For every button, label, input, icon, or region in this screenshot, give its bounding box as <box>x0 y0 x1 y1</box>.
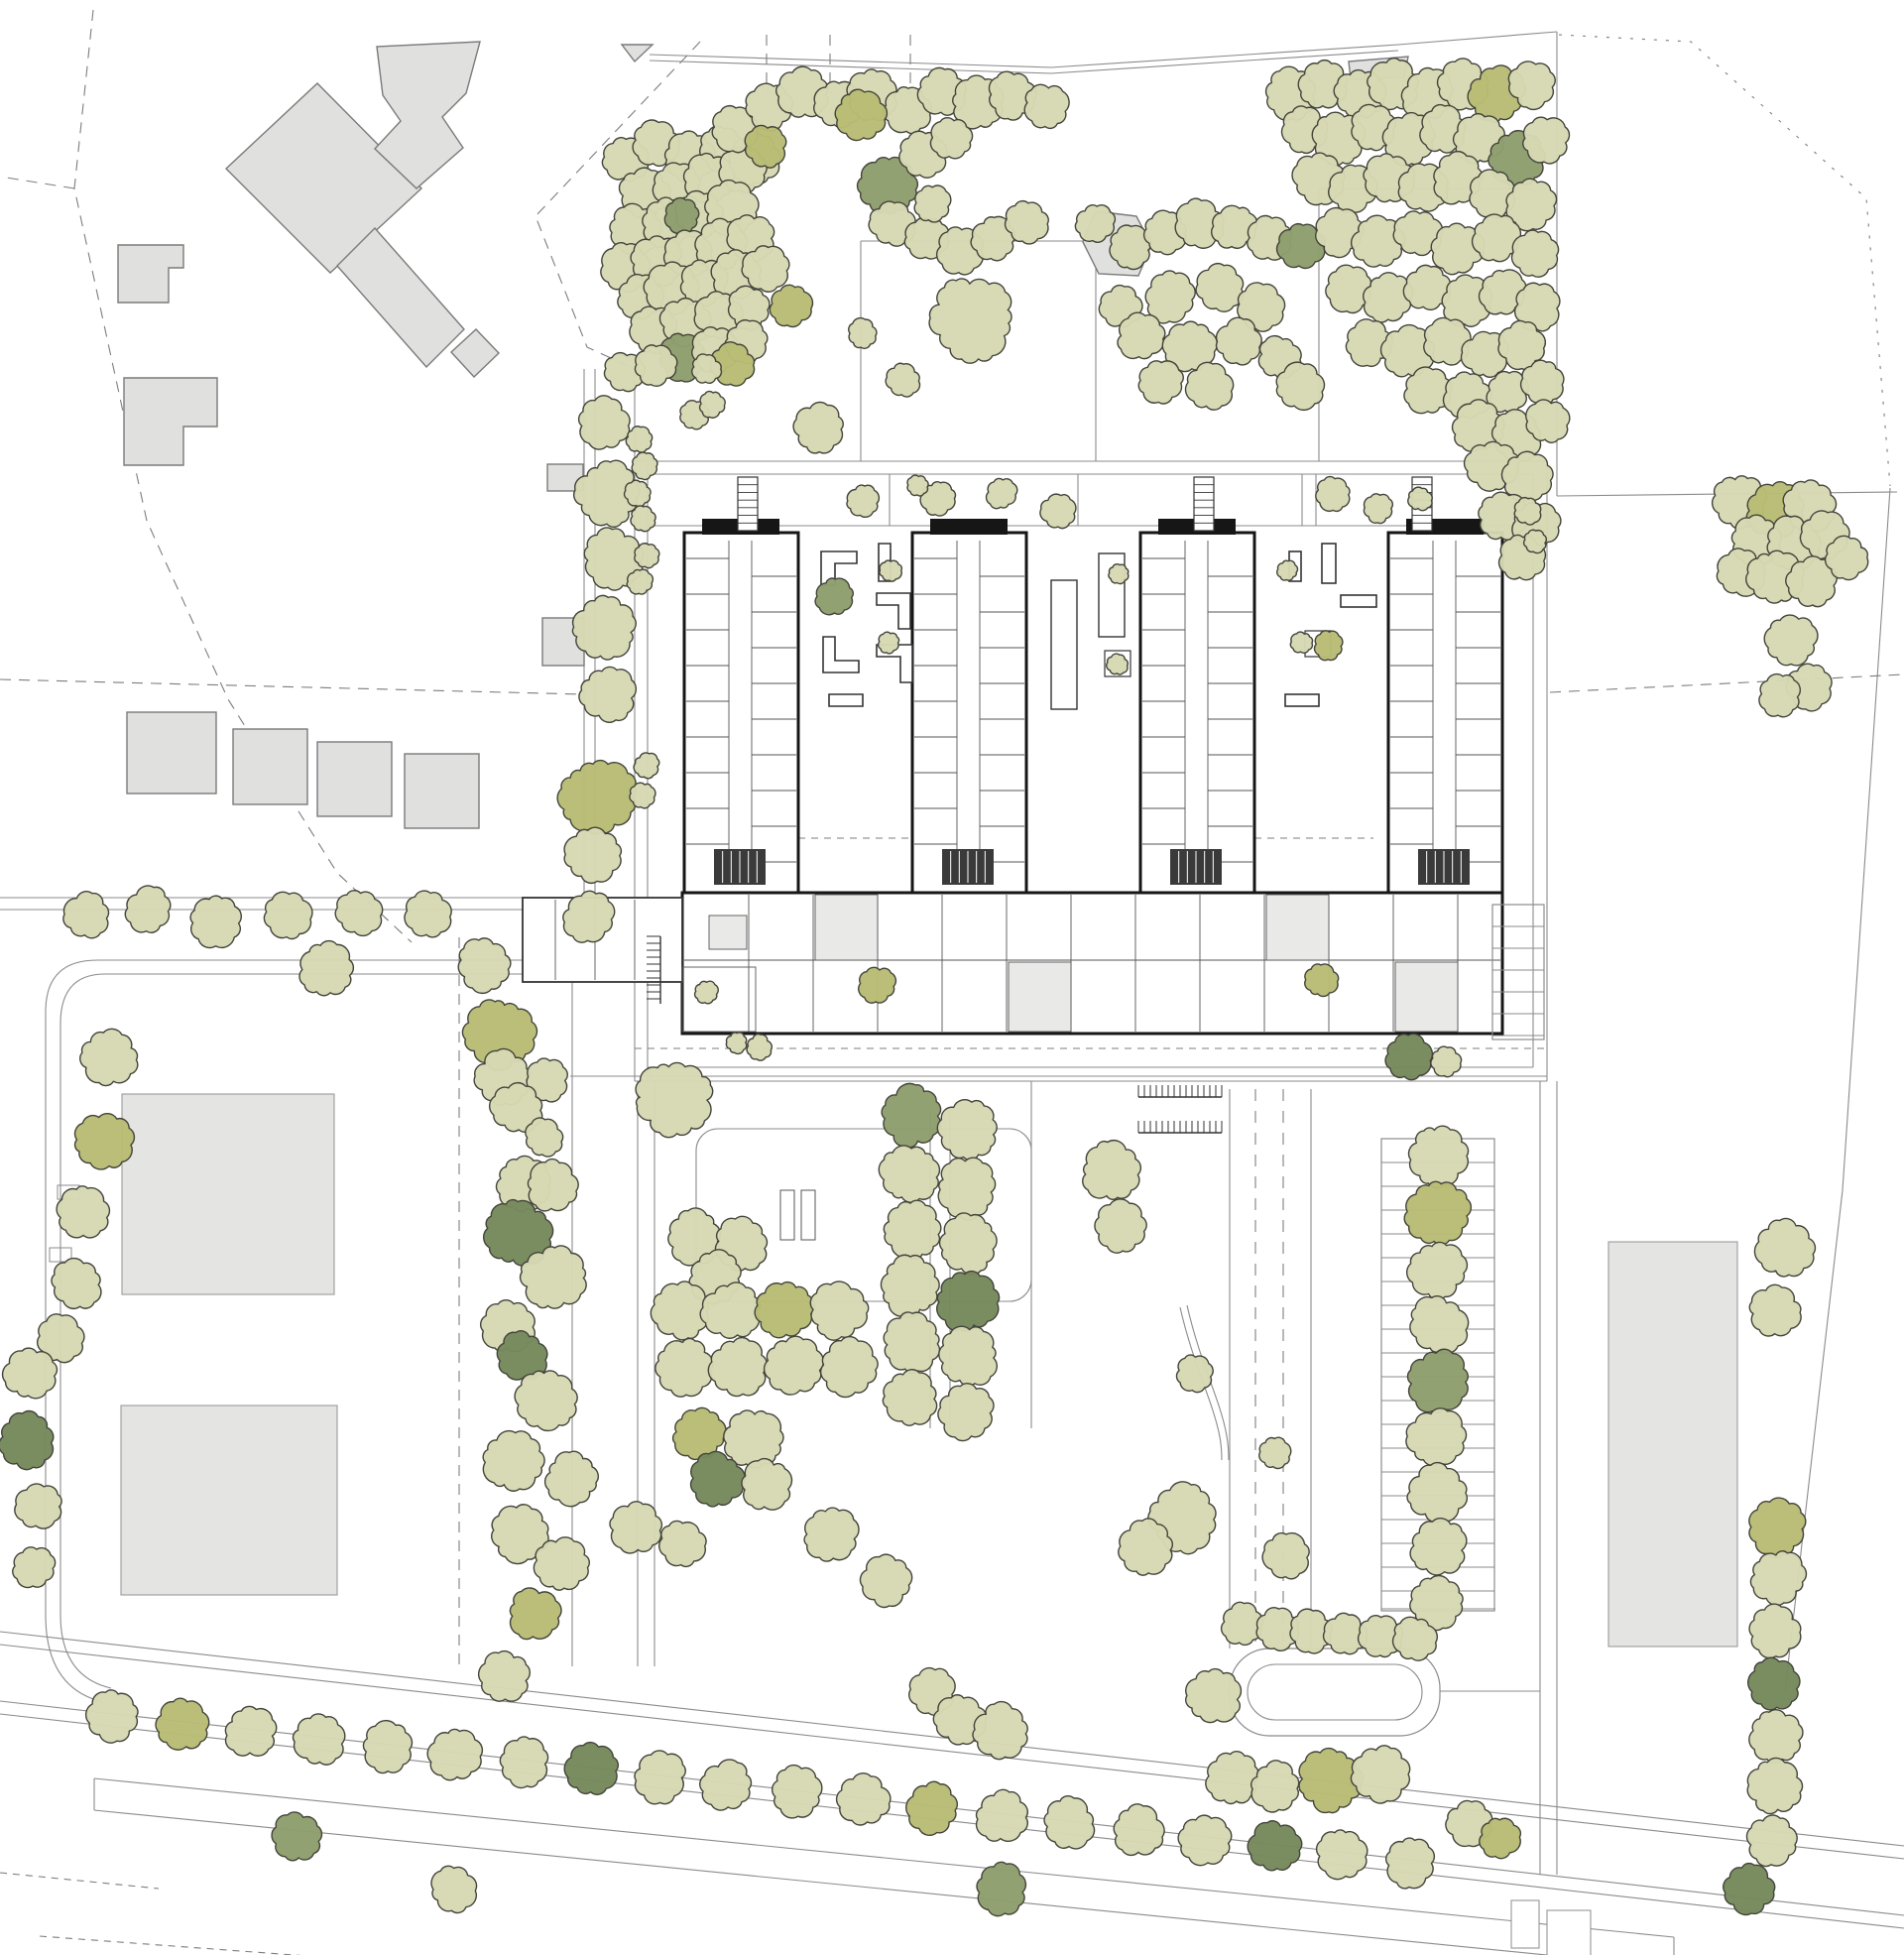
tree <box>294 1714 345 1765</box>
path-line <box>650 55 1051 67</box>
parcel-dashed-line <box>0 177 74 188</box>
tree <box>299 941 353 996</box>
tree <box>483 1431 544 1492</box>
tree <box>879 632 899 654</box>
tree <box>938 1384 994 1441</box>
tree <box>793 403 843 453</box>
site-plan-svg <box>0 0 1904 1955</box>
tree <box>664 197 698 233</box>
parcel-dashed-line <box>1550 674 1904 692</box>
tree <box>939 1326 998 1386</box>
tree <box>700 1760 752 1810</box>
tree <box>1364 494 1392 524</box>
tree <box>1431 1046 1462 1076</box>
play-equipment <box>801 1190 815 1240</box>
tree <box>579 667 636 722</box>
tree <box>1114 1804 1164 1856</box>
tree <box>1501 451 1553 501</box>
tree <box>1512 230 1559 277</box>
tree <box>1404 1181 1471 1245</box>
flat-surface <box>1608 1242 1737 1647</box>
context-building <box>233 729 307 804</box>
tree <box>1749 1710 1803 1764</box>
tree <box>1748 1657 1800 1710</box>
tree <box>1724 1864 1775 1915</box>
tree <box>929 279 1011 363</box>
flat-surface <box>121 1405 337 1595</box>
tree <box>264 892 312 938</box>
tree <box>458 938 511 993</box>
tree <box>837 1773 891 1825</box>
play-equipment <box>780 1190 794 1240</box>
context-building <box>124 378 217 465</box>
tree <box>659 1521 706 1566</box>
tree <box>1480 1818 1521 1858</box>
context-building <box>337 228 464 367</box>
tree <box>632 452 657 479</box>
tree <box>1040 494 1076 528</box>
tree <box>1316 477 1350 512</box>
tree <box>15 1484 61 1528</box>
tree <box>1248 1821 1302 1871</box>
tree <box>940 1213 998 1275</box>
building-wing <box>1140 533 1254 893</box>
tree <box>190 896 241 947</box>
tree <box>937 1272 1000 1332</box>
tree <box>1385 1034 1432 1079</box>
building-south-band <box>682 893 1502 1034</box>
courtyard-planter <box>829 694 863 706</box>
tree <box>886 363 919 397</box>
tree <box>634 753 659 779</box>
tree <box>1315 631 1343 661</box>
tree <box>1406 1408 1467 1466</box>
parcel-dashed-line <box>0 679 583 694</box>
building-wing <box>1388 533 1502 893</box>
tree <box>847 485 879 517</box>
skylight <box>1051 580 1077 709</box>
path-line <box>1051 45 1398 67</box>
tree <box>500 1737 547 1787</box>
context-building <box>405 754 479 828</box>
tree <box>1259 1437 1291 1468</box>
tree <box>13 1547 56 1588</box>
tree <box>564 827 621 883</box>
tree <box>907 475 928 496</box>
tree <box>882 1083 940 1147</box>
gray-room <box>815 895 878 960</box>
tree <box>884 1312 939 1373</box>
tree <box>52 1259 101 1309</box>
tree <box>3 1348 58 1399</box>
tree <box>708 1338 767 1397</box>
tree <box>526 1118 563 1157</box>
courtyard-planter <box>1285 694 1319 706</box>
flat-surface <box>122 1094 334 1294</box>
tree <box>1178 1815 1232 1865</box>
tree <box>528 1160 578 1211</box>
tree <box>564 1743 618 1795</box>
tree <box>726 1033 746 1054</box>
tree <box>700 392 726 419</box>
tree <box>479 1651 531 1702</box>
tree <box>1196 264 1243 312</box>
tree <box>1749 1284 1801 1336</box>
tree <box>545 1451 599 1506</box>
tree <box>1024 84 1069 128</box>
tree <box>1138 361 1183 404</box>
path-line <box>1051 51 1398 73</box>
tree <box>938 1158 995 1220</box>
gray-room <box>1395 962 1458 1032</box>
tree <box>977 1862 1025 1915</box>
tree <box>655 1338 713 1397</box>
tree <box>1410 1519 1467 1575</box>
tree <box>272 1812 321 1861</box>
tree <box>86 1690 138 1743</box>
tree <box>821 1337 878 1398</box>
tree <box>63 892 109 938</box>
gray-room <box>1266 895 1329 960</box>
courtyard-planter <box>823 637 859 672</box>
wing-north-core <box>930 519 1008 535</box>
building-wing <box>684 533 798 893</box>
tree <box>625 480 652 507</box>
tree <box>1386 1838 1435 1889</box>
tree <box>651 1282 708 1340</box>
tree <box>1749 1498 1806 1558</box>
tree <box>747 1035 772 1061</box>
tree <box>1759 674 1800 717</box>
tree <box>1044 1796 1094 1849</box>
tree <box>1206 1752 1258 1804</box>
tree <box>427 1729 482 1779</box>
tree <box>510 1588 561 1640</box>
context-building <box>317 742 392 816</box>
drop-off-loop <box>1230 1649 1440 1736</box>
path-line <box>1398 32 1557 45</box>
tree <box>579 396 630 449</box>
tree <box>1746 1815 1797 1866</box>
tree <box>431 1866 476 1912</box>
tree <box>1747 1758 1802 1813</box>
tree <box>930 118 972 159</box>
context-building <box>127 712 216 794</box>
tree <box>1407 1349 1468 1412</box>
tree <box>1119 1519 1173 1575</box>
main-building-layer <box>523 519 1502 1301</box>
tree <box>1262 1533 1309 1579</box>
tree <box>572 595 636 660</box>
tree <box>860 1554 911 1607</box>
courtyard-planter <box>1322 544 1336 583</box>
tree <box>1826 536 1868 579</box>
tree <box>1251 1761 1299 1812</box>
parcel-dashed-line <box>0 1873 159 1889</box>
tree <box>225 1706 276 1756</box>
tree <box>906 1781 958 1835</box>
tree <box>635 1751 685 1804</box>
road-crossing <box>1547 1910 1591 1955</box>
tree <box>1407 1242 1468 1299</box>
tree <box>987 478 1017 508</box>
tree <box>835 89 887 140</box>
tree <box>75 1114 135 1169</box>
tree <box>804 1508 859 1561</box>
tree <box>1083 1141 1141 1200</box>
tree <box>773 1766 822 1818</box>
tree <box>884 1200 941 1259</box>
tree <box>1409 1126 1469 1187</box>
tree <box>635 345 676 386</box>
tree <box>883 1370 936 1425</box>
road-crossing <box>1511 1900 1539 1948</box>
tree <box>156 1698 209 1750</box>
tree <box>1118 312 1165 358</box>
tree <box>810 1282 868 1340</box>
tree <box>695 981 719 1004</box>
tree <box>1095 1199 1146 1253</box>
courtyard-planter <box>877 593 910 629</box>
context-building <box>451 329 499 377</box>
tree <box>631 506 655 532</box>
building-wing <box>912 533 1026 893</box>
tree <box>557 761 636 834</box>
tree <box>755 1283 814 1338</box>
parcel-dashed-line <box>1559 35 1890 486</box>
tree <box>849 318 877 349</box>
context-building <box>226 83 421 273</box>
tree <box>937 1100 997 1161</box>
path-line <box>94 1810 1686 1955</box>
gray-room <box>1009 962 1071 1032</box>
courtyard-planter <box>1341 595 1376 607</box>
tree <box>1186 1669 1242 1723</box>
tree <box>765 1336 824 1395</box>
tree <box>363 1721 412 1773</box>
tree <box>1750 1551 1806 1606</box>
tree <box>521 1246 587 1308</box>
drop-off-loop-inner <box>1248 1664 1422 1720</box>
tree <box>1410 1296 1469 1354</box>
site-plan-page <box>0 0 1904 1955</box>
tree <box>914 185 951 222</box>
context-building <box>622 45 653 61</box>
tree <box>1523 117 1570 164</box>
gray-room <box>709 916 747 949</box>
tree <box>1290 632 1312 653</box>
path-line <box>650 61 1051 73</box>
tree <box>80 1029 138 1085</box>
tree <box>1754 1219 1815 1277</box>
context-building <box>118 245 183 303</box>
tree <box>125 886 171 932</box>
tree <box>635 544 659 568</box>
tree <box>627 569 653 594</box>
tree <box>1176 1355 1213 1393</box>
tree <box>1749 1604 1801 1657</box>
tree <box>977 1789 1028 1841</box>
tree <box>1524 530 1547 552</box>
tree <box>770 285 812 326</box>
tree <box>1351 1746 1409 1803</box>
path-line <box>1843 488 1890 1190</box>
tree <box>57 1186 109 1238</box>
parcel-dashed-line <box>40 1936 307 1955</box>
tree <box>879 1146 939 1202</box>
tree <box>515 1371 577 1431</box>
tree <box>1317 1830 1368 1880</box>
tree <box>1514 498 1540 525</box>
tree <box>880 560 901 581</box>
tree <box>630 783 655 808</box>
tree <box>636 1062 713 1137</box>
tree <box>1109 564 1129 584</box>
tree <box>1764 615 1818 666</box>
tree <box>742 1459 792 1511</box>
